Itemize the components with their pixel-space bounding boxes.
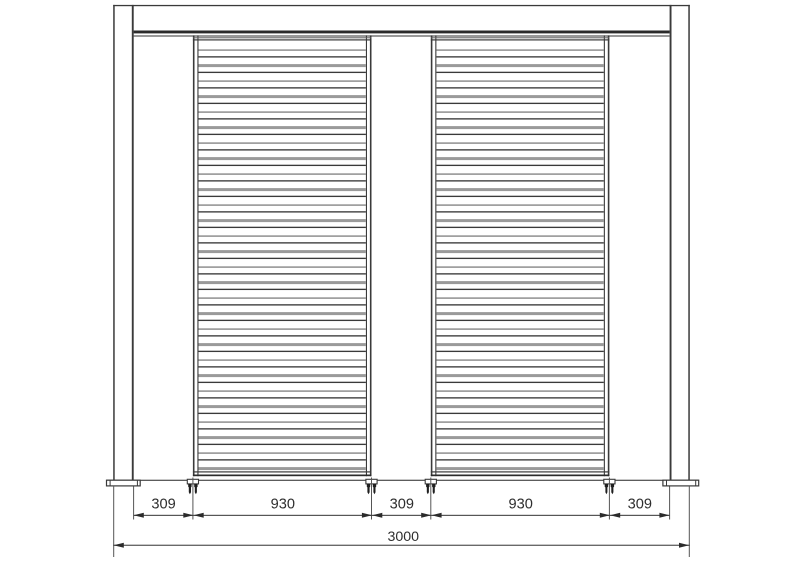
svg-text:930: 930 xyxy=(271,497,295,513)
svg-text:309: 309 xyxy=(390,497,414,513)
svg-text:3000: 3000 xyxy=(388,529,420,545)
svg-text:309: 309 xyxy=(628,497,652,513)
svg-text:930: 930 xyxy=(509,497,533,513)
svg-text:309: 309 xyxy=(151,497,175,513)
